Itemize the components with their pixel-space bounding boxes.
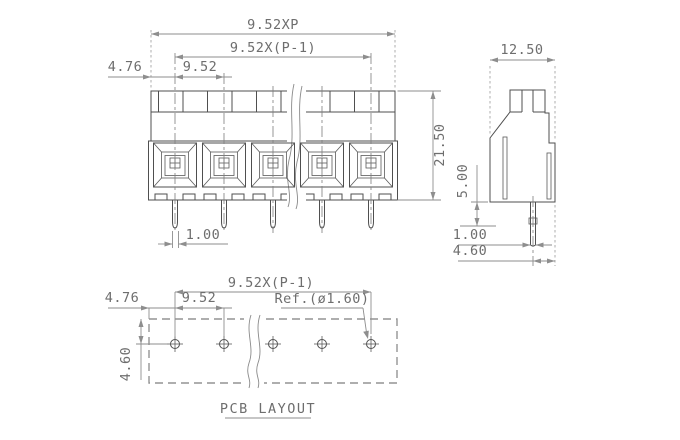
dim-total-pitch-label: 9.52XP xyxy=(247,17,299,33)
dim-span-label: 9.52X(P-1) xyxy=(230,40,316,56)
technical-drawing-page: 9.52XP 9.52X(P-1) 4.76 9.52 21.50 xyxy=(0,0,680,440)
front-view: 9.52XP 9.52X(P-1) 4.76 9.52 21.50 xyxy=(108,17,448,248)
side-view: 12.50 5.00 1.00 4.60 xyxy=(453,42,555,266)
dim-pitch-label: 9.52 xyxy=(183,59,218,75)
pcb-layout-title: PCB LAYOUT xyxy=(220,401,316,417)
pcb-hole-ref: Ref.(ø1.60) xyxy=(275,291,370,339)
pcb-dim-pitch-label: 9.52 xyxy=(182,290,217,306)
pcb-dim-span-label: 9.52X(P-1) xyxy=(228,275,314,291)
pcb-break-mask xyxy=(244,317,264,385)
dim-front-pin-width-label: 1.00 xyxy=(186,227,221,243)
pcb-dim-edge-offset-label: 4.76 xyxy=(105,290,140,306)
terminal-block-drawing: 9.52XP 9.52X(P-1) 4.76 9.52 21.50 xyxy=(0,0,680,440)
pcb-dim-row-offset-label: 4.60 xyxy=(118,347,134,382)
pcb-hole-ref-label: Ref.(ø1.60) xyxy=(275,291,370,307)
pcb-layout-view: 9.52X(P-1) 4.76 9.52 Ref.(ø1.60) 4.60 xyxy=(105,275,397,418)
dim-side-pin-offset-label: 4.60 xyxy=(453,243,488,259)
dim-offset-pitch: 4.76 9.52 xyxy=(108,59,232,80)
dim-side-pin-width-label: 1.00 xyxy=(453,227,488,243)
dim-pin-length-label: 5.00 xyxy=(455,164,471,199)
dim-front-pin-width: 1.00 xyxy=(158,227,228,248)
pcb-dim-row-offset: 4.60 xyxy=(118,319,167,381)
pcb-dim-offset-pitch: 4.76 9.52 xyxy=(105,290,232,336)
dim-span: 9.52X(P-1) xyxy=(175,40,371,60)
dim-height: 21.50 xyxy=(398,91,449,200)
dim-side-width-label: 12.50 xyxy=(500,42,543,58)
comb-dividers xyxy=(159,91,380,112)
dim-height-label: 21.50 xyxy=(432,123,448,166)
dim-edge-offset-label: 4.76 xyxy=(108,59,143,75)
